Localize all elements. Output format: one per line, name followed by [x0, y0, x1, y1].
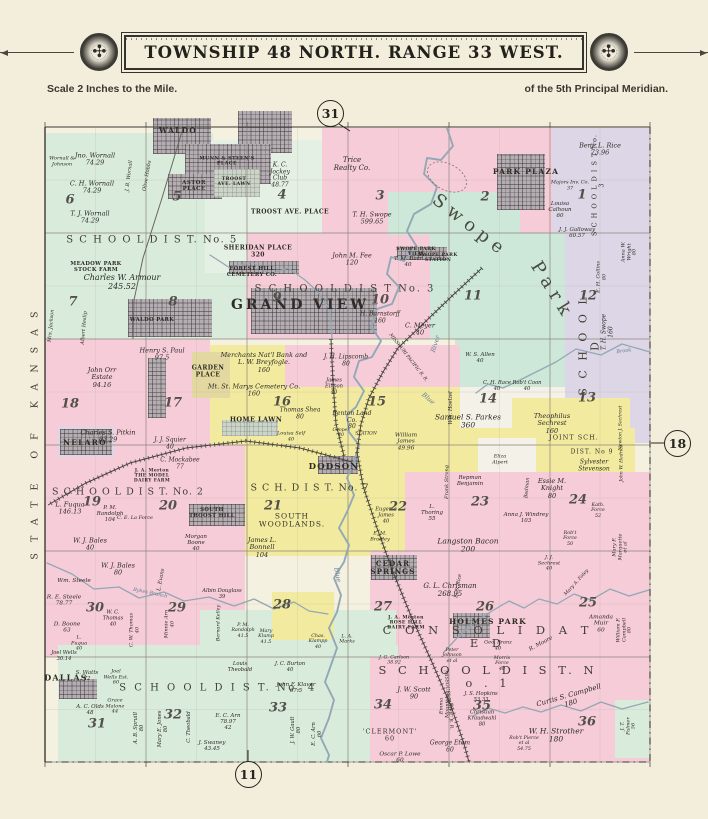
owner-label: J. W. Gault 80 [291, 716, 303, 743]
owner-label: Peter Johnson et al [442, 648, 461, 664]
owner-label: J. J. Squier 40 [154, 437, 186, 450]
owner-label: J. T. Palmer 56 [621, 717, 638, 735]
owner-label: Rob't Force 50 [563, 531, 577, 547]
owner-label: G. L. Chrisman 268.95 [423, 583, 476, 599]
owner-label: SHERIDAN PLACE 320 [224, 245, 292, 258]
owner-label: Sylvester Stevenson [578, 459, 609, 472]
owner-label: J. Swaney 43.45 [199, 740, 226, 752]
section-number: 1 [577, 188, 586, 203]
town-label: WALDO [159, 127, 197, 135]
owner-label: Oscar P. Lowe 60 [379, 752, 420, 765]
owner-label: T. J. Wornall 74.29 [70, 211, 109, 226]
owner-label: John Orr Estate 94.16 [88, 367, 117, 389]
owner-label: Geo. Franz 40 [484, 640, 512, 651]
owner-label: Louis Theobald [228, 662, 252, 674]
district-label: S C H O O L D I S T No. 3 [255, 283, 436, 294]
owner-label: C. W. Thomas 40 [129, 613, 140, 647]
section-number: 4 [277, 188, 286, 203]
owner-label: John W. Hedrick [619, 444, 624, 482]
owner-label: Joel Wells 30.14 [51, 651, 77, 663]
section-number: 21 [264, 499, 282, 514]
owner-label: Langston Bacon 200 [437, 538, 498, 555]
owner-label: A. B. Spruill 80 [134, 712, 146, 744]
owner-label: STATE OF KANSAS [31, 300, 42, 559]
section-number: 28 [273, 598, 291, 613]
section-number: 16 [273, 395, 291, 410]
owner-label: K. C. Jockey Club 48.77 [270, 163, 290, 190]
owner-label: J. A. Morton THE MODEL DAIRY FARM [134, 470, 170, 485]
owner-label: ASTOR PLACE [182, 180, 206, 192]
section-number: 5 [172, 190, 181, 205]
town-label: NELARO [63, 439, 107, 447]
owner-label: Charles W. Armour 245.52 [84, 274, 161, 292]
owner-label: W. J. Bales 40 [73, 538, 107, 553]
owner-label: T. H. Swope 599.65 [352, 212, 391, 227]
owner-label: Repman Benjamin [457, 475, 483, 487]
owner-label: L. Thoring 55 [421, 504, 443, 522]
owner-label: Jno. Wornall 74.29 [75, 153, 115, 168]
section-number: 27 [374, 600, 392, 615]
district-label: S C H O O L D I S T. No. 2 [52, 488, 204, 499]
owner-label: GARDEN PLACE [192, 365, 224, 378]
owner-label: Kath. Force 52 [591, 503, 605, 519]
owner-label: Eliza Alpert [492, 454, 508, 465]
race-track-oval [422, 156, 471, 199]
owner-label: Cooper 40 [333, 428, 350, 438]
plat-map-page: ✣ TOWNSHIP 48 NORTH. RANGE 33 WEST. ✣ Sc… [0, 0, 708, 819]
district-label: SOUTH WOODLANDS. [259, 513, 325, 530]
owner-label: Joel Wells Est. 60 [104, 670, 129, 687]
town-label: PARK PLAZA [493, 168, 559, 176]
page-ref-31: 31 [317, 100, 344, 127]
owner-label: C. H. Wornall 74.29 [70, 181, 114, 196]
owner-label: John M. Fee 120 [332, 253, 372, 268]
owner-label: Theophilus Sechrest 160 [534, 413, 570, 435]
owner-label: Bernard Kelley [216, 605, 221, 641]
town-label: DODSON [309, 463, 360, 473]
owner-label: E. C. Arn 60 [312, 722, 324, 746]
page-ref-11: 11 [235, 761, 262, 788]
section-number: 2 [480, 190, 489, 205]
owner-label: TROOST AVE. PLACE [251, 210, 329, 217]
section-number: 22 [389, 500, 407, 515]
district-label: DIST. No 9 [571, 450, 614, 457]
owner-label: P. M. Randolph 41.5 [231, 623, 254, 639]
owner-label: Grace Malone 44 [106, 699, 125, 716]
owner-label: Chas. Klampp 40 [309, 634, 328, 650]
owner-label: James L. Bonnell 104 [248, 537, 276, 559]
owner-label: Frank Strong [445, 465, 451, 499]
owner-label: Louisa Self 40 [277, 431, 305, 442]
section-number: 12 [579, 289, 597, 304]
owner-label: FOREST HILL CEMETERY CO. [227, 267, 277, 279]
owner-label: William F. Campbell 80 [617, 617, 634, 642]
owner-label: SOUTH TROOST HILL [189, 508, 235, 520]
owner-label: C. Meyer 40 [405, 323, 435, 338]
owner-label: J. G. Carlson 38.92 [379, 656, 409, 667]
owner-label: John F. Klaver 67.5 [277, 682, 316, 694]
owner-label: J. J. Sechrest 40 [538, 556, 560, 573]
owner-label: R. E. Steele 78.77 [47, 595, 81, 608]
owner-label: STATION [355, 431, 377, 436]
section-number: 36 [578, 715, 596, 730]
section-number: 24 [569, 493, 587, 508]
owner-label: C. Mockabee 77 [160, 457, 199, 470]
section-number: 26 [476, 600, 494, 615]
owner-label: Trice Realty Co. [334, 157, 371, 173]
district-label: S C H O O L D I S T No. 3 [592, 131, 607, 240]
owner-label: Rob't Pierce et al 54.75 [509, 736, 539, 752]
owner-label: L. A. Marks [339, 635, 354, 646]
section-number: 33 [269, 701, 287, 716]
owner-label: GRAND VIEW [231, 298, 369, 314]
owner-label: TROOST AVE. LAWN [217, 177, 250, 187]
owner-label: SWOPE PARK STATION [418, 253, 458, 263]
owner-label: W. C. Thomas 40 [103, 610, 124, 627]
owner-label: H. Barnstorff 160 [360, 311, 400, 324]
owner-label: E. C. Arn 78.97 42 [215, 713, 240, 731]
owner-label: Rob't Coon 40 [512, 381, 541, 393]
district-label: 'CLERMONT' 60 [363, 729, 418, 744]
owner-label: J. W. Scott 90 [397, 687, 430, 702]
owner-label: Anna W. Wright 80 [622, 242, 639, 262]
owner-label: MUNN & STEEN'S PLACE [199, 157, 254, 168]
owner-label: Wornall & Johnson [49, 156, 75, 167]
owner-label: Albin Douglass 39 [202, 589, 241, 601]
district-label: S C H O O L D I S T. No. 5 [66, 234, 238, 245]
section-number: 10 [371, 293, 389, 308]
section-number: 14 [479, 392, 497, 407]
owner-label: Amanda Muir 60 [589, 614, 613, 633]
section-number: 8 [168, 295, 177, 310]
owner-label: J. H. Lipscomb 80 [324, 354, 368, 367]
owner-label: Merchants Nat'l Bank and L. W. Breyfogle… [221, 352, 308, 374]
district-label: JOINT SCH. [549, 434, 599, 441]
section-number: 20 [159, 499, 177, 514]
owner-label: Samuel S. Parkes 360 [435, 414, 501, 431]
section-number: 13 [578, 391, 596, 406]
owner-label: Essie M. Knight 80 [538, 478, 566, 500]
owner-label: Anna J. Windrey 103 [504, 512, 549, 524]
owner-label: A. C. Olds 48 [76, 704, 104, 716]
district-label: S C H. D I S T. No. 7 [250, 484, 369, 495]
owner-label: HOME LAWN [230, 416, 282, 423]
owner-label: George Etem 60 [430, 740, 470, 753]
section-number: 34 [374, 698, 392, 713]
owner-label: E. M. Bradley [370, 531, 390, 542]
section-number: 6 [65, 193, 74, 208]
town-label: CEDAR SPRINGS [370, 560, 415, 576]
owner-label: Louisa Calhoun 60 [548, 201, 571, 219]
owner-label: Mary Klump 41.5 [258, 629, 274, 645]
section-number: 31 [88, 717, 106, 732]
owner-label: Morgan Boone 40 [185, 534, 207, 552]
section-number: 18 [61, 397, 79, 412]
section-number: 19 [83, 495, 101, 510]
owner-label: T. H. Swope 160 [601, 314, 614, 350]
owner-label: C. Theobald [187, 711, 193, 742]
section-number: 17 [164, 396, 182, 411]
owner-label: S. Watts 72 [76, 670, 99, 682]
owner-label: L. Fuqua 146.13 [55, 502, 84, 517]
owner-label: Wm. Steele [57, 578, 91, 584]
owner-label: D. Boone 63 [54, 622, 81, 635]
section-number: 9 [272, 291, 281, 306]
district-label: S C H O O L D [578, 286, 603, 404]
owner-label: Mary F. Marquette et al [613, 534, 630, 561]
owner-label: J. C. Burton 40 [275, 662, 305, 674]
section-number: 29 [168, 601, 186, 616]
page-ref-18: 18 [664, 430, 691, 457]
section-number: 11 [464, 289, 482, 304]
owner-label: James Ellison 40 [325, 378, 343, 395]
section-number: 35 [473, 699, 491, 714]
owner-label: W. J. Bales 80 [101, 563, 135, 578]
section-number: 23 [471, 495, 489, 510]
owner-label: William James 49.96 [395, 432, 417, 451]
section-number: 3 [375, 189, 384, 204]
owner-label: J. J. Galloway 60.57 [559, 227, 595, 239]
section-number: 15 [368, 395, 386, 410]
owner-label: C. E. La Force [117, 516, 153, 522]
section-number: 7 [68, 295, 77, 310]
section-number: 25 [579, 596, 597, 611]
owner-label: WALDO PARK [130, 318, 174, 324]
section-number: 32 [164, 708, 182, 723]
owner-label: W. S. Allen 40 [465, 352, 495, 364]
section-number: 30 [86, 601, 104, 616]
owner-label: Morris Force 40 [494, 656, 510, 672]
owner-label: Henry S. Paul 97.5 [139, 348, 184, 363]
